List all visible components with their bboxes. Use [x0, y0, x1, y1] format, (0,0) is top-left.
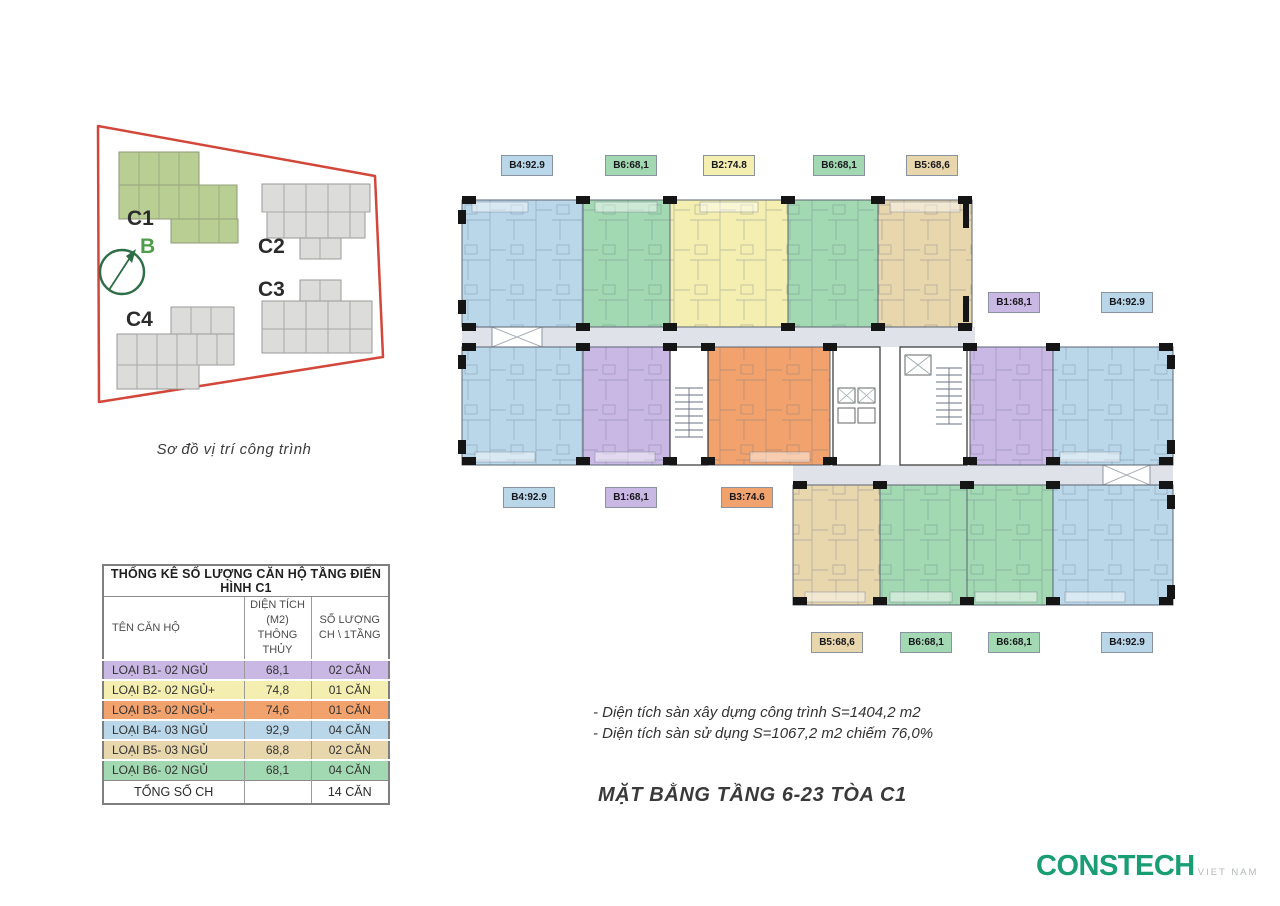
site-label-c1: C1	[127, 207, 154, 230]
table-row: LOẠI B1- 02 NGỦ68,102 CĂN	[103, 660, 389, 680]
floor-plan	[458, 196, 1175, 605]
unit-chip: B1:68,1	[988, 292, 1040, 313]
table-row: LOẠI B5- 03 NGỦ68,802 CĂN	[103, 740, 389, 760]
col-header-count: SỐ LƯỢNG CH \ 1TẦNG	[311, 597, 389, 661]
unit-chip: B6:68,1	[813, 155, 865, 176]
table-row: LOẠI B2- 02 NGỦ+74,801 CĂN	[103, 680, 389, 700]
table-row: LOẠI B4- 03 NGỦ92,904 CĂN	[103, 720, 389, 740]
compass-icon	[100, 249, 144, 294]
shaft-upper	[492, 327, 542, 347]
site-label-c4: C4	[126, 308, 153, 331]
col-header-area: DIỆN TÍCH (M2) THÔNG THỦY	[244, 597, 311, 661]
core-stair-left	[670, 347, 708, 465]
unit-chip: B1:68,1	[605, 487, 657, 508]
unit-chip: B6:68,1	[900, 632, 952, 653]
page-title: MẶT BẰNG TẦNG 6-23 TÒA C1	[598, 784, 907, 807]
site-diagram: C1 C2 C3 C4 B	[98, 126, 383, 402]
unit-chip: B5:68,6	[811, 632, 863, 653]
site-caption: Sơ đồ vị trí công trình	[134, 441, 334, 458]
col-header-area-l2: THÔNG THỦY	[246, 628, 310, 658]
unit-chip: B4:92.9	[501, 155, 553, 176]
unit-chip: B5:68,6	[906, 155, 958, 176]
table-row: LOẠI B3- 02 NGỦ+74,601 CĂN	[103, 700, 389, 720]
unit-chip: B4:92.9	[1101, 632, 1153, 653]
unit-chip: B4:92.9	[1101, 292, 1153, 313]
col-header-area-l1: DIỆN TÍCH (M2)	[246, 598, 310, 628]
page: C1 C2 C3 C4 B	[0, 0, 1280, 906]
area-notes: - Diện tích sàn xây dựng công trình S=14…	[593, 702, 933, 744]
table-title: THỐNG KÊ SỐ LƯỢNG CĂN HỘ TẦNG ĐIỂN HÌNH …	[103, 565, 389, 597]
col-header-name: TÊN CĂN HỘ	[103, 597, 244, 661]
core-stair-right	[900, 347, 967, 465]
logo-vietnam: VIET NAM	[1198, 867, 1259, 878]
unit-chip: B6:68,1	[988, 632, 1040, 653]
table-footer-row: TỔNG SỐ CH14 CĂN	[103, 780, 389, 804]
compass-north-label: B	[140, 235, 155, 258]
unit-chip: B6:68,1	[605, 155, 657, 176]
apartment-stats-table: THỐNG KÊ SỐ LƯỢNG CĂN HỘ TẦNG ĐIỂN HÌNH …	[102, 564, 390, 805]
logo-constech: CONSTECH	[1036, 850, 1195, 882]
col-header-count-l1: SỐ LƯỢNG	[313, 613, 388, 628]
col-header-count-l2: CH \ 1TẦNG	[313, 628, 388, 643]
logo: CONSTECH VIET NAM	[1036, 850, 1258, 882]
unit-chip: B3:74.6	[721, 487, 773, 508]
site-label-c3: C3	[258, 278, 285, 301]
note-built-area: - Diện tích sàn xây dựng công trình S=14…	[593, 702, 933, 723]
unit-chip: B2:74.8	[703, 155, 755, 176]
core-elevators	[833, 347, 880, 465]
note-usable-area: - Diện tích sàn sử dụng S=1067,2 m2 chiế…	[593, 723, 933, 744]
table-row: LOẠI B6- 02 NGỦ68,104 CĂN	[103, 760, 389, 780]
unit-chip: B4:92.9	[503, 487, 555, 508]
shaft-lower	[1103, 465, 1150, 485]
site-label-c2: C2	[258, 235, 285, 258]
